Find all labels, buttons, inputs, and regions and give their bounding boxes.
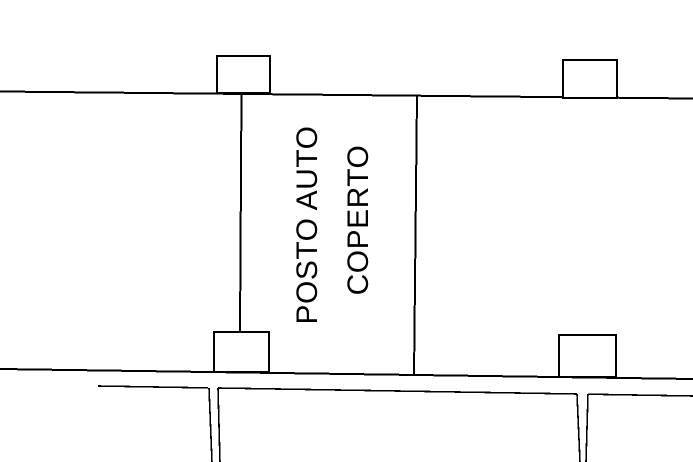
lower-wall-line-center xyxy=(218,388,577,394)
floor-plan-drawing: POSTO AUTO COPERTO xyxy=(0,0,693,462)
pillar-top-right xyxy=(563,60,617,98)
lower-wall-line-left xyxy=(98,386,208,388)
stall-label: POSTO AUTO COPERTO xyxy=(291,126,375,325)
lower-wall-line-right xyxy=(588,394,693,396)
stall-divider-left xyxy=(240,92,242,333)
pillar-top-left xyxy=(217,56,270,93)
stall-label-line2: COPERTO xyxy=(342,145,375,296)
partition-right-outer xyxy=(577,394,580,462)
pillar-bottom-right xyxy=(559,335,616,377)
partition-left-inner xyxy=(218,388,220,462)
stall-divider-right xyxy=(414,96,417,376)
partition-left-outer xyxy=(209,388,212,462)
stall-label-line1: POSTO AUTO xyxy=(291,126,324,325)
pillar-bottom-left xyxy=(214,332,269,372)
partition-right-inner xyxy=(586,394,588,462)
floor-plan-canvas: POSTO AUTO COPERTO xyxy=(0,0,693,462)
